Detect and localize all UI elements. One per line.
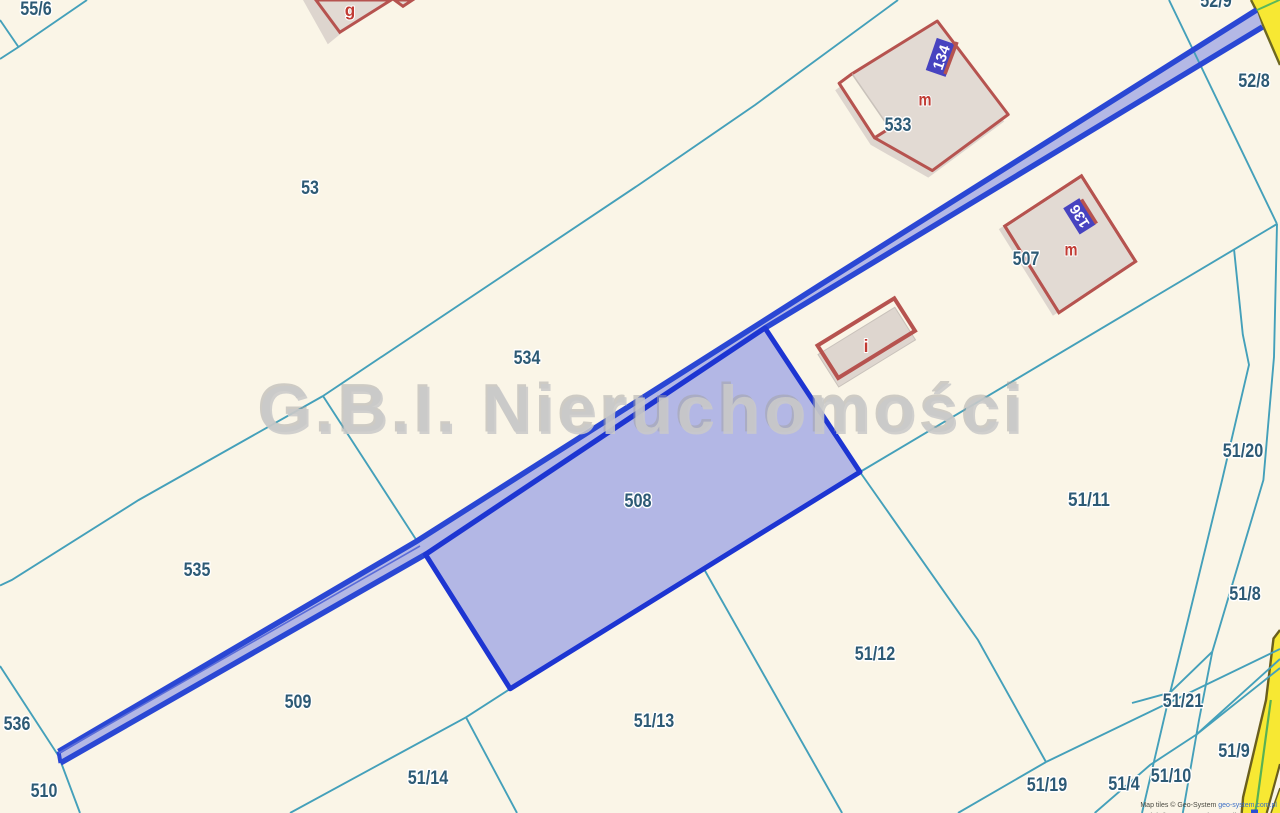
svg-text:52/8: 52/8 — [1238, 71, 1270, 92]
svg-text:533: 533 — [885, 115, 912, 136]
svg-text:508: 508 — [624, 491, 651, 512]
svg-text:G.B.I. Nieruchomości: G.B.I. Nieruchomości — [259, 372, 1027, 449]
svg-text:51/12: 51/12 — [855, 644, 895, 665]
svg-text:51/13: 51/13 — [634, 711, 674, 732]
svg-text:534: 534 — [514, 348, 541, 369]
svg-text:51/20: 51/20 — [1223, 441, 1263, 462]
svg-text:51/8: 51/8 — [1229, 584, 1261, 605]
svg-text:51/19: 51/19 — [1027, 775, 1067, 796]
svg-text:55/6: 55/6 — [20, 0, 52, 20]
svg-text:53: 53 — [301, 178, 319, 199]
svg-text:52/9: 52/9 — [1200, 0, 1232, 12]
svg-text:536: 536 — [4, 714, 31, 735]
svg-text:51/14: 51/14 — [408, 768, 449, 789]
svg-text:g: g — [345, 0, 356, 20]
svg-text:m: m — [1065, 240, 1078, 260]
svg-text:51/4: 51/4 — [1108, 774, 1140, 795]
svg-text:Map tiles © Geo-System geo-sys: Map tiles © Geo-System geo-system.com.pl — [1140, 801, 1277, 809]
svg-text:51/10: 51/10 — [1151, 766, 1191, 787]
svg-text:507: 507 — [1013, 249, 1040, 270]
svg-text:510: 510 — [31, 781, 58, 802]
svg-text:51/9: 51/9 — [1218, 741, 1250, 762]
svg-text:535: 535 — [184, 560, 211, 581]
svg-text:509: 509 — [285, 692, 312, 713]
svg-text:i: i — [864, 336, 869, 356]
svg-text:51/11: 51/11 — [1068, 490, 1110, 511]
svg-text:51/21: 51/21 — [1163, 691, 1204, 712]
svg-text:m: m — [919, 90, 932, 110]
